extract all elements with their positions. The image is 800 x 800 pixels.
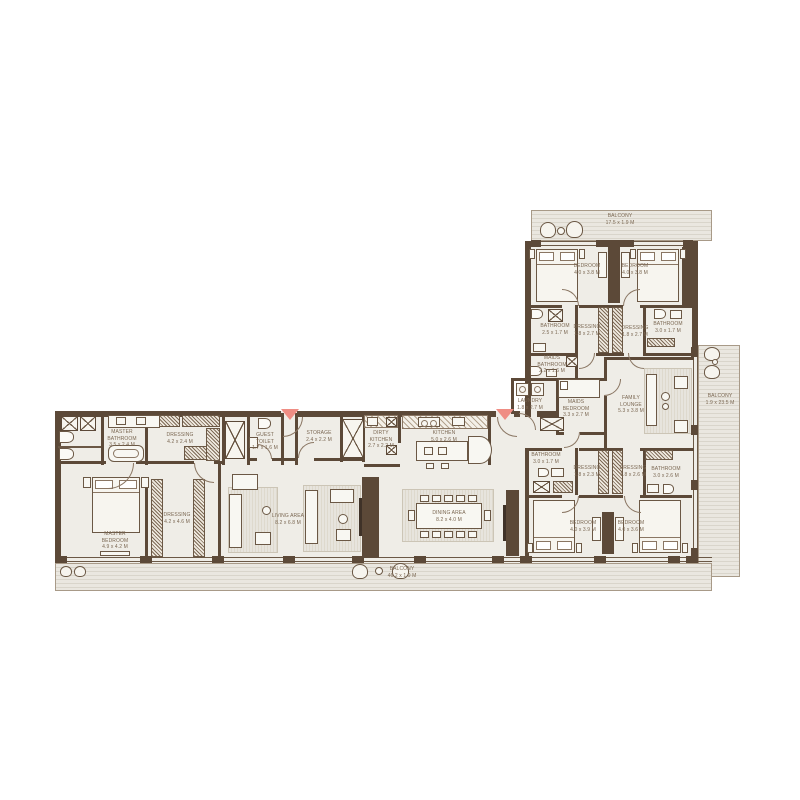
nightstand <box>682 543 688 553</box>
island-sink <box>438 447 447 455</box>
wardrobe <box>182 415 220 427</box>
room-label-balcony-right: BALCONY1.9 x 23.5 M <box>705 393 735 406</box>
wardrobe <box>193 479 205 557</box>
window-wall <box>55 561 712 562</box>
window-wall <box>55 557 712 558</box>
nightstand <box>680 249 686 259</box>
kitchen-counter <box>402 415 488 429</box>
dining-chair <box>420 531 429 538</box>
bidet <box>59 448 74 460</box>
wall <box>607 357 694 360</box>
dining-chair <box>420 495 429 502</box>
wall <box>596 353 624 356</box>
elevator-shaft <box>342 419 364 458</box>
wall <box>640 495 692 498</box>
nightstand <box>141 477 149 488</box>
washing-machine <box>516 383 529 396</box>
wall <box>511 378 559 381</box>
dining-chair <box>444 531 453 538</box>
kitchen-sink <box>452 417 465 426</box>
balcony-chair <box>704 365 720 379</box>
armchair <box>330 489 354 503</box>
closet-unit <box>540 417 564 431</box>
vanity-cabinet <box>553 481 573 493</box>
room-label-maids-bathroom: MAIDS BATHROOM2.2 x 1.6 M <box>536 355 568 375</box>
room-label-bathroom-3: BATHROOM3.0 x 1.7 M <box>530 452 562 465</box>
room-label-family-lounge: FAMILY LOUNGE5.3 x 3.8 M <box>613 395 649 415</box>
toilet <box>531 309 543 319</box>
toilet <box>663 484 674 494</box>
coffee-table <box>661 392 670 401</box>
wall <box>604 357 607 379</box>
room-label-balcony-bottom: BALCONY46.2 x 1.9 M <box>380 566 424 579</box>
stool <box>441 463 449 469</box>
coffee-table <box>662 403 669 410</box>
sink <box>116 417 126 425</box>
bed-bench <box>100 551 130 556</box>
room-label-guest-toilet: GUEST TOILET1.7 x 1.6 M <box>250 432 280 452</box>
window-mullion <box>531 240 541 247</box>
tv-screen <box>359 498 362 536</box>
nightstand <box>630 249 636 259</box>
balcony-chair <box>352 564 368 579</box>
window-mullion <box>55 556 67 563</box>
room-label-bathroom-2: BATHROOM3.0 x 1.7 M <box>650 321 686 334</box>
wall <box>148 461 194 464</box>
wall <box>272 458 298 461</box>
sink <box>551 468 564 477</box>
shower-tray <box>61 416 78 431</box>
wall <box>525 448 529 558</box>
armchair <box>674 376 688 389</box>
room-label-dressing-4: DRESSING1.8 x 2.6 M <box>620 465 646 478</box>
room-label-storage: STORAGE2.4 x 2.2 M <box>300 430 338 443</box>
sink <box>670 310 682 319</box>
dryer <box>531 383 544 396</box>
toilet <box>59 431 74 443</box>
ottoman <box>255 532 271 545</box>
dining-chair <box>432 495 441 502</box>
dining-chair <box>468 495 477 502</box>
sink <box>647 484 659 493</box>
nightstand <box>579 249 585 259</box>
room-label-master-bathroom: MASTER BATHROOM3.5 x 2.4 M <box>100 429 144 449</box>
wall <box>640 305 692 308</box>
window-mullion <box>594 556 606 563</box>
dining-chair <box>484 510 491 521</box>
elevator-shaft <box>225 421 245 459</box>
balcony-chair <box>74 566 86 577</box>
room-label-bedroom-3: BEDROOM4.0 x 3.9 M <box>568 520 598 533</box>
balcony-table <box>557 227 565 235</box>
room-label-bedroom-1: BEDROOM4.0 x 3.8 M <box>572 263 602 276</box>
window-mullion <box>492 556 504 563</box>
wall <box>247 458 257 461</box>
window-wall <box>697 347 698 558</box>
ottoman <box>336 529 351 541</box>
tv-unit <box>602 512 614 554</box>
window-mullion <box>683 240 693 247</box>
window-mullion <box>596 240 634 247</box>
appliance-shaft <box>386 417 397 427</box>
pillow <box>560 381 568 390</box>
room-label-master-bedroom: MASTER BEDROOM4.9 x 4.2 M <box>92 531 138 551</box>
island-sink <box>424 447 433 455</box>
window-mullion <box>691 347 698 357</box>
sofa <box>305 490 318 544</box>
room-label-bedroom-4: BEDROOM4.0 x 3.6 M <box>616 520 646 533</box>
window-mullion <box>414 556 426 563</box>
nightstand <box>529 249 535 259</box>
room-label-dressing-master: DRESSING4.2 x 4.6 M <box>160 512 194 525</box>
wall <box>579 495 623 498</box>
room-label-bathroom-4: BATHROOM3.0 x 2.6 M <box>648 466 684 479</box>
wall <box>528 305 562 308</box>
room-label-kitchen: KITCHEN5.0 x 2.6 M <box>420 430 468 443</box>
armchair <box>674 420 688 433</box>
vanity-cabinet <box>645 450 673 460</box>
nightstand <box>83 477 91 488</box>
curved-counter <box>468 436 492 464</box>
room-label-dressing-3: DRESSING1.8 x 2.3 M <box>574 465 600 478</box>
wall <box>218 461 221 561</box>
balcony-chair <box>60 566 72 577</box>
room-label-bathroom-1: BATHROOM2.5 x 1.7 M <box>538 323 572 336</box>
room-label-dressing-2: DRESSING1.8 x 2.7 M <box>622 325 648 338</box>
toilet <box>654 309 666 319</box>
balcony-chair <box>540 222 556 238</box>
window-mullion <box>691 480 698 490</box>
dining-chair <box>444 495 453 502</box>
sink <box>533 343 546 352</box>
dining-chair <box>432 531 441 538</box>
wall <box>58 461 106 464</box>
balcony-chair <box>566 221 583 238</box>
room-label-laundry: LAUNDRY1.8 x 2.7 M <box>514 398 546 411</box>
wall <box>525 495 562 498</box>
wardrobe <box>206 428 220 461</box>
room-label-dirty-kitchen: DIRTY KITCHEN2.7 x 2.2 M <box>364 430 398 450</box>
wall <box>556 432 564 435</box>
wall <box>314 458 342 461</box>
dining-chair <box>456 531 465 538</box>
tv-partition-wall <box>362 477 379 558</box>
room-label-living-area: LIVING AREA8.2 x 6.8 M <box>270 513 306 526</box>
prep-sink <box>367 417 378 426</box>
dining-chair <box>468 531 477 538</box>
room-label-dressing-master-top: DRESSING4.2 x 2.4 M <box>160 432 200 445</box>
vanity-cabinet <box>647 338 675 347</box>
balcony-table <box>712 359 718 365</box>
toilet <box>258 418 271 429</box>
room-label-dressing-1: DRESSING1.8 x 2.7 M <box>574 324 600 337</box>
dining-chair <box>408 510 415 521</box>
nightstand <box>576 543 582 553</box>
wall <box>342 458 364 461</box>
room-label-bedroom-2: BEDROOM4.0 x 3.8 M <box>620 263 650 276</box>
wall <box>525 448 562 451</box>
sofa <box>229 494 242 548</box>
wall <box>580 432 607 435</box>
shower-tray <box>80 416 96 431</box>
room-label-dining-area: DINING AREA8.2 x 4.0 M <box>426 510 472 523</box>
toilet <box>538 468 549 477</box>
window-mullion <box>283 556 295 563</box>
wall <box>145 488 148 558</box>
room-label-balcony-top: BALCONY17.5 x 1.9 M <box>585 213 655 226</box>
dining-chair <box>456 495 465 502</box>
shower-tray <box>548 309 563 322</box>
shower-tray <box>533 481 550 493</box>
floor-plan: BALCONY17.5 x 1.9 M BEDROOM4.0 x 3.8 M B… <box>0 0 800 800</box>
tv-unit <box>608 247 620 303</box>
balcony-right <box>698 345 740 577</box>
stool <box>426 463 434 469</box>
nightstand <box>527 543 533 553</box>
coffee-table <box>338 514 348 524</box>
media-wall <box>506 490 519 556</box>
stove-hob <box>418 417 440 427</box>
sink <box>136 417 146 425</box>
window-mullion <box>668 556 680 563</box>
wall <box>398 413 401 443</box>
wall <box>643 353 692 356</box>
wall <box>364 464 400 467</box>
chaise <box>232 474 258 490</box>
window-mullion <box>691 548 698 558</box>
window-wall <box>693 347 694 558</box>
tv-screen <box>503 505 506 541</box>
room-label-maids-bedroom: MAIDS BEDROOM3.3 x 2.7 M <box>558 399 594 419</box>
wall <box>604 396 607 448</box>
window-mullion <box>691 425 698 435</box>
nightstand <box>632 543 638 553</box>
